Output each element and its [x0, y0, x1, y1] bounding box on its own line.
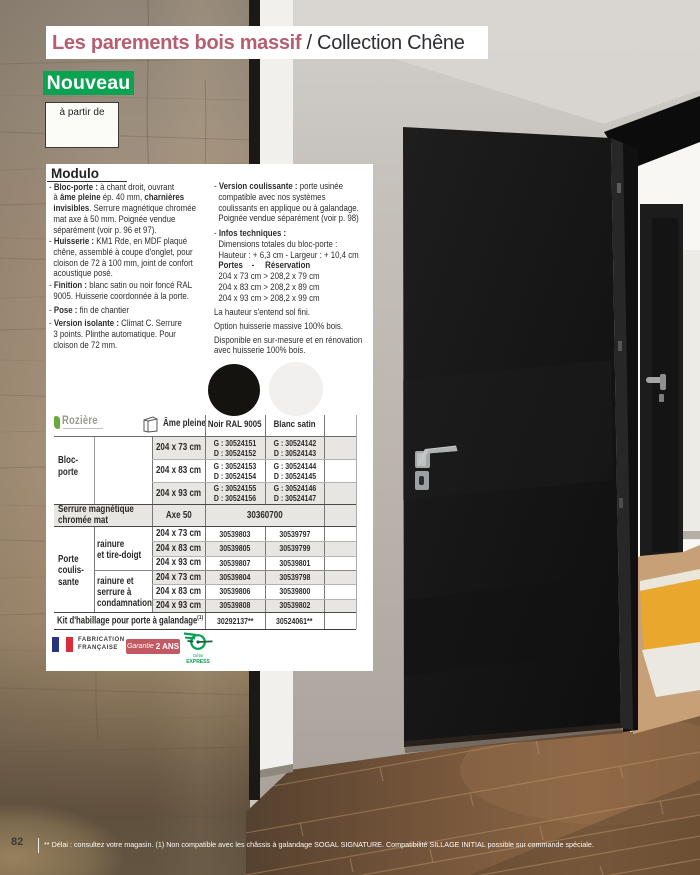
- svg-text:EXPRESS: EXPRESS: [186, 659, 210, 665]
- svg-text:Délai: Délai: [193, 653, 203, 658]
